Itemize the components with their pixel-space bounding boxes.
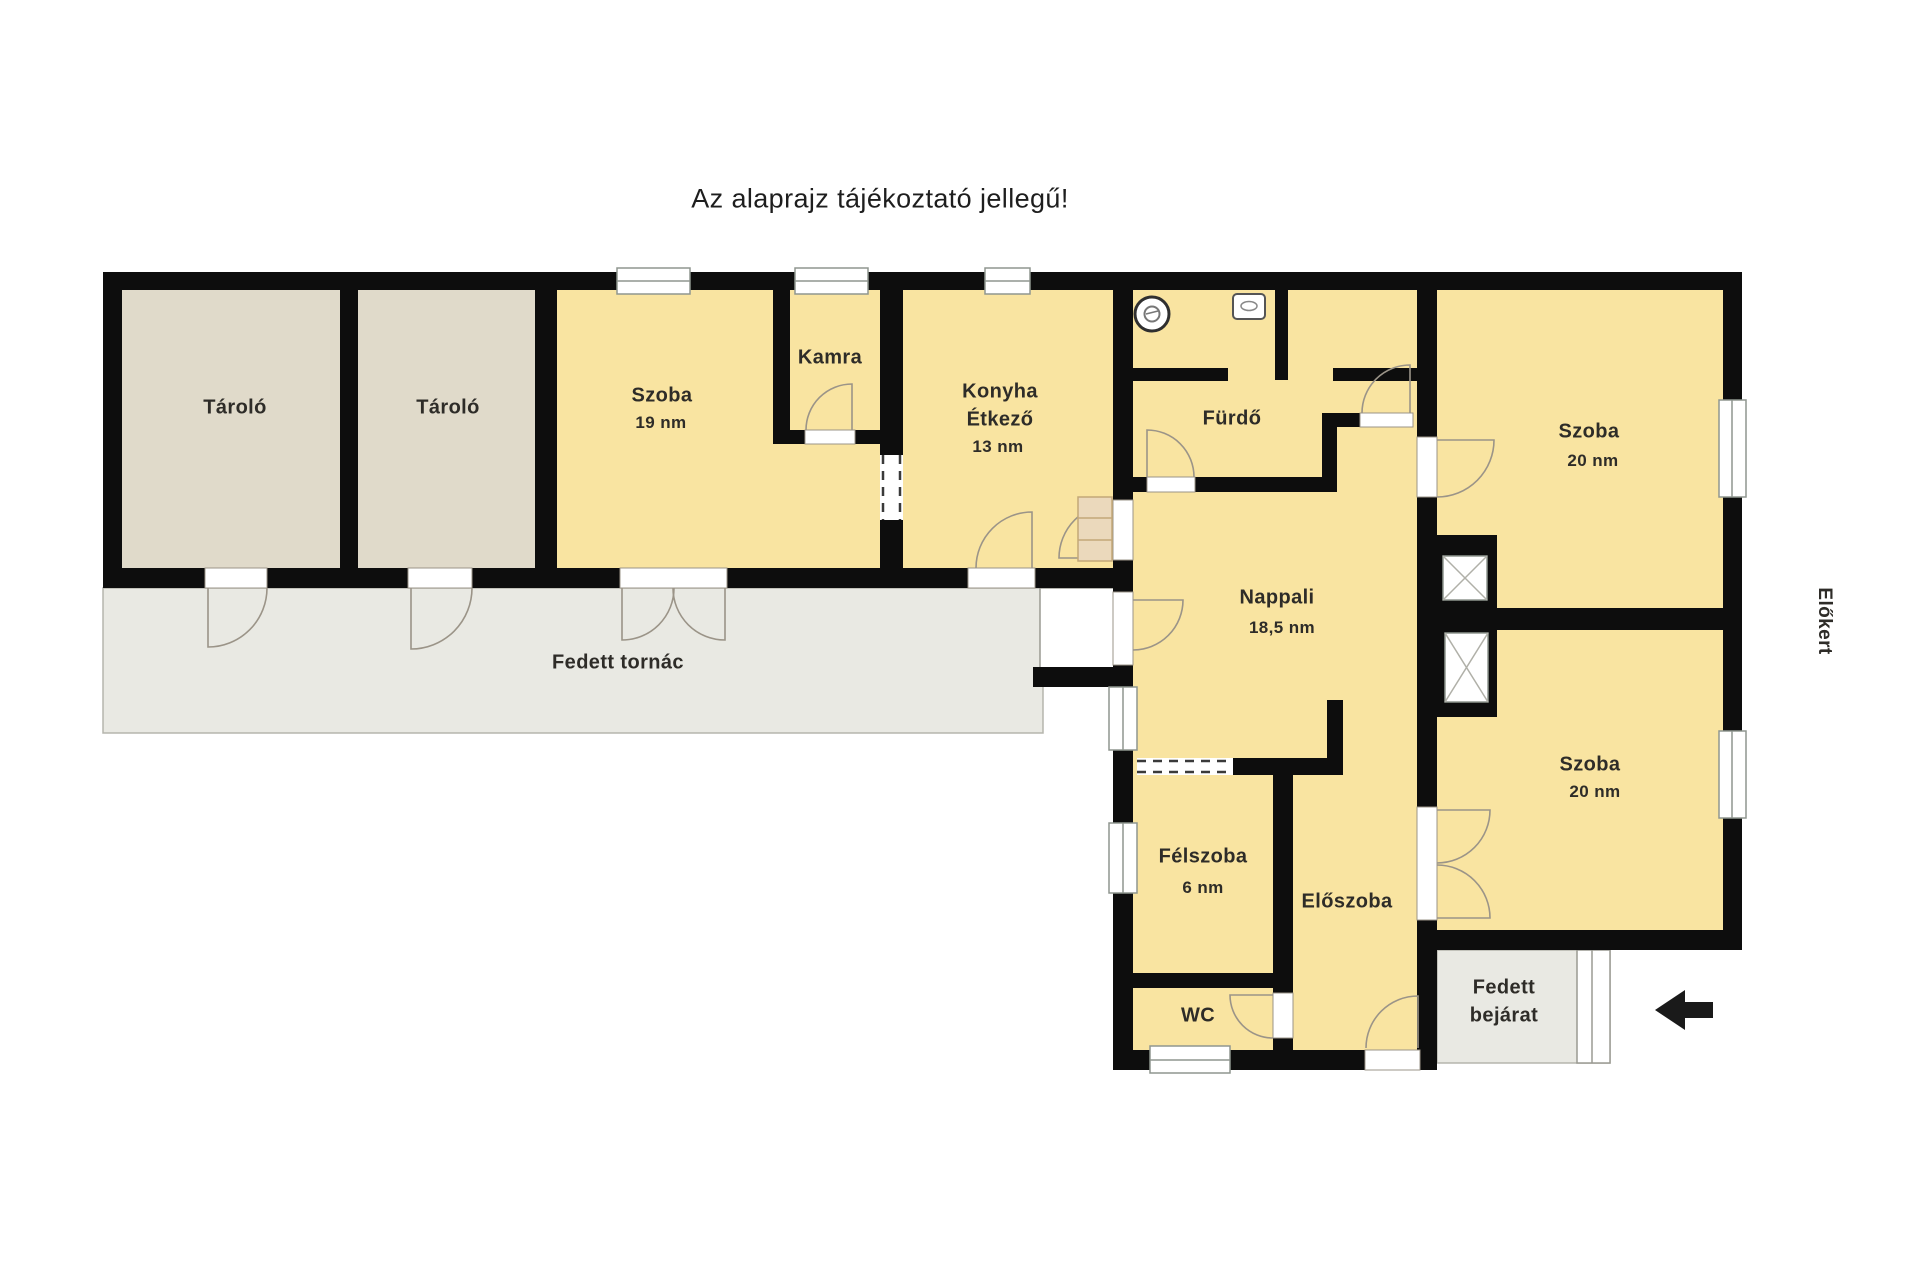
area-label-covered-entrance-2: bejárat — [1470, 1005, 1538, 1028]
interior-step — [1078, 497, 1112, 561]
room-label-room-20-top: Szoba — [1559, 421, 1620, 444]
room-label-wc: WC — [1181, 1005, 1215, 1028]
room-label-living-room: Nappali — [1239, 587, 1314, 610]
page-title: Az alaprajz tájékoztató jellegű! — [691, 184, 1069, 215]
water-heater-icon — [1233, 294, 1265, 319]
room-area-living-room: 18,5 nm — [1249, 618, 1315, 638]
floor-plan: Az alaprajz tájékoztató jellegű! Tároló … — [0, 0, 1920, 1280]
room-label-kitchen: Konyha — [962, 381, 1038, 404]
room-label-room-19: Szoba — [632, 385, 693, 408]
room-area-room-20-top: 20 nm — [1567, 451, 1618, 471]
room-label-kitchen-2: Étkező — [967, 409, 1034, 432]
room-label-storage-2: Tároló — [416, 397, 480, 420]
entrance-arrow-icon — [1655, 990, 1713, 1030]
room-area-room-19: 19 nm — [635, 413, 686, 433]
area-label-front-garden: Előkert — [1813, 587, 1835, 654]
west-entrance-steps — [1040, 588, 1115, 668]
room-label-room-20-bottom: Szoba — [1560, 754, 1621, 777]
room-area-kitchen: 13 nm — [972, 437, 1023, 457]
room-area-half-room: 6 nm — [1182, 878, 1223, 898]
entrance-steps — [1577, 950, 1610, 1063]
room-label-storage-1: Tároló — [203, 397, 267, 420]
chimney-icon — [1443, 556, 1487, 600]
washing-machine-icon — [1135, 297, 1169, 331]
room-label-pantry: Kamra — [798, 347, 862, 370]
room-label-bathroom: Fürdő — [1203, 408, 1262, 431]
room-label-hallway: Előszoba — [1302, 891, 1393, 914]
area-label-covered-entrance-1: Fedett — [1473, 977, 1535, 1000]
room-label-half-room: Félszoba — [1159, 846, 1248, 869]
room-area-room-20-bottom: 20 nm — [1569, 782, 1620, 802]
chimney-icon — [1445, 633, 1488, 702]
area-label-porch: Fedett tornác — [552, 652, 684, 675]
